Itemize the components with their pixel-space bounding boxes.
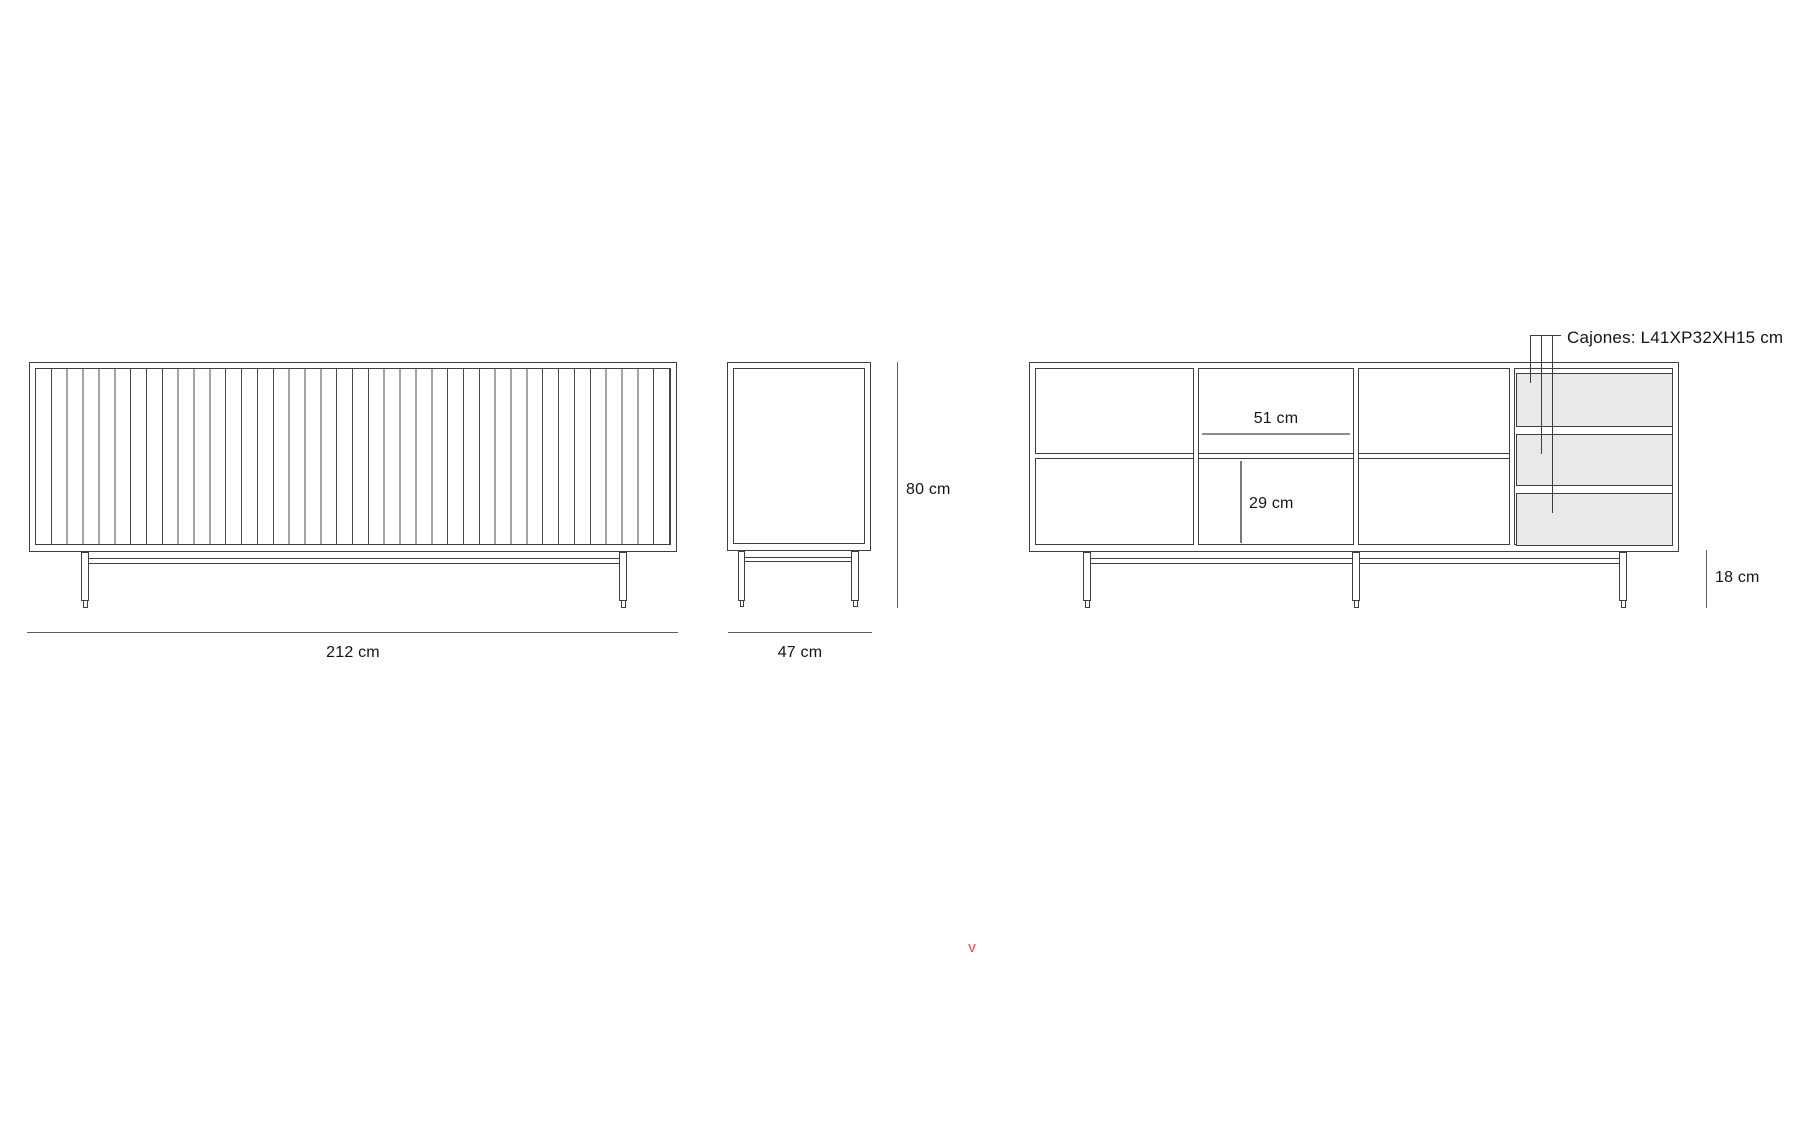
front-right-foot <box>621 600 626 608</box>
internal-right-foot <box>1621 600 1626 608</box>
side-depth-dimension-line <box>728 632 872 633</box>
internal-middle-leg <box>1352 552 1360 601</box>
drawer-bottom <box>1516 493 1673 546</box>
internal-left-foot <box>1085 600 1090 608</box>
middle-shelf <box>1035 453 1510 459</box>
product-dimensions-diagram: 212 cm 47 cm 80 cm Cajones: L41XP32XH15 … <box>0 0 1800 1127</box>
side-view-inner-frame <box>733 368 865 544</box>
legs-height-dimension-line <box>1706 550 1707 608</box>
vertical-divider-2 <box>1353 368 1359 545</box>
front-width-label: 212 cm <box>292 644 414 662</box>
shelf-width-label: 51 cm <box>1216 410 1336 428</box>
legs-height-label: 18 cm <box>1715 569 1760 587</box>
height-dimension-line <box>897 362 898 608</box>
side-front-leg <box>738 551 745 601</box>
front-right-leg <box>619 552 627 601</box>
front-slats-pattern <box>36 369 670 544</box>
drawer-middle <box>1516 434 1673 486</box>
vertical-divider-3 <box>1509 368 1515 545</box>
front-leg-rail <box>88 558 619 564</box>
internal-left-leg <box>1083 552 1091 601</box>
front-width-dimension-line <box>27 632 678 633</box>
side-depth-label: 47 cm <box>739 644 861 662</box>
drawer-leader-connector <box>1530 335 1561 336</box>
side-height-label: 80 cm <box>906 481 951 499</box>
side-leg-rail <box>744 557 851 562</box>
expand-chevron-icon[interactable]: v <box>964 939 980 956</box>
drawer-leader-line-1 <box>1530 335 1531 383</box>
side-back-foot <box>853 600 858 607</box>
internal-middle-foot <box>1354 600 1359 608</box>
front-left-leg <box>81 552 89 601</box>
side-view-outline <box>727 362 871 551</box>
vertical-divider-1 <box>1193 368 1199 545</box>
drawers-spec-label: Cajones: L41XP32XH15 cm <box>1567 328 1783 348</box>
front-left-foot <box>83 600 88 608</box>
compartment-height-dimension-line <box>1240 461 1242 543</box>
drawer-leader-line-3 <box>1552 335 1553 513</box>
drawer-leader-line-2 <box>1541 335 1542 454</box>
side-back-leg <box>851 551 859 601</box>
internal-right-leg <box>1619 552 1627 601</box>
side-front-foot <box>740 600 744 607</box>
compartment-height-label: 29 cm <box>1249 495 1294 513</box>
shelf-width-dimension-line <box>1202 433 1350 435</box>
front-view-outline <box>29 362 677 552</box>
drawer-top <box>1516 373 1673 427</box>
